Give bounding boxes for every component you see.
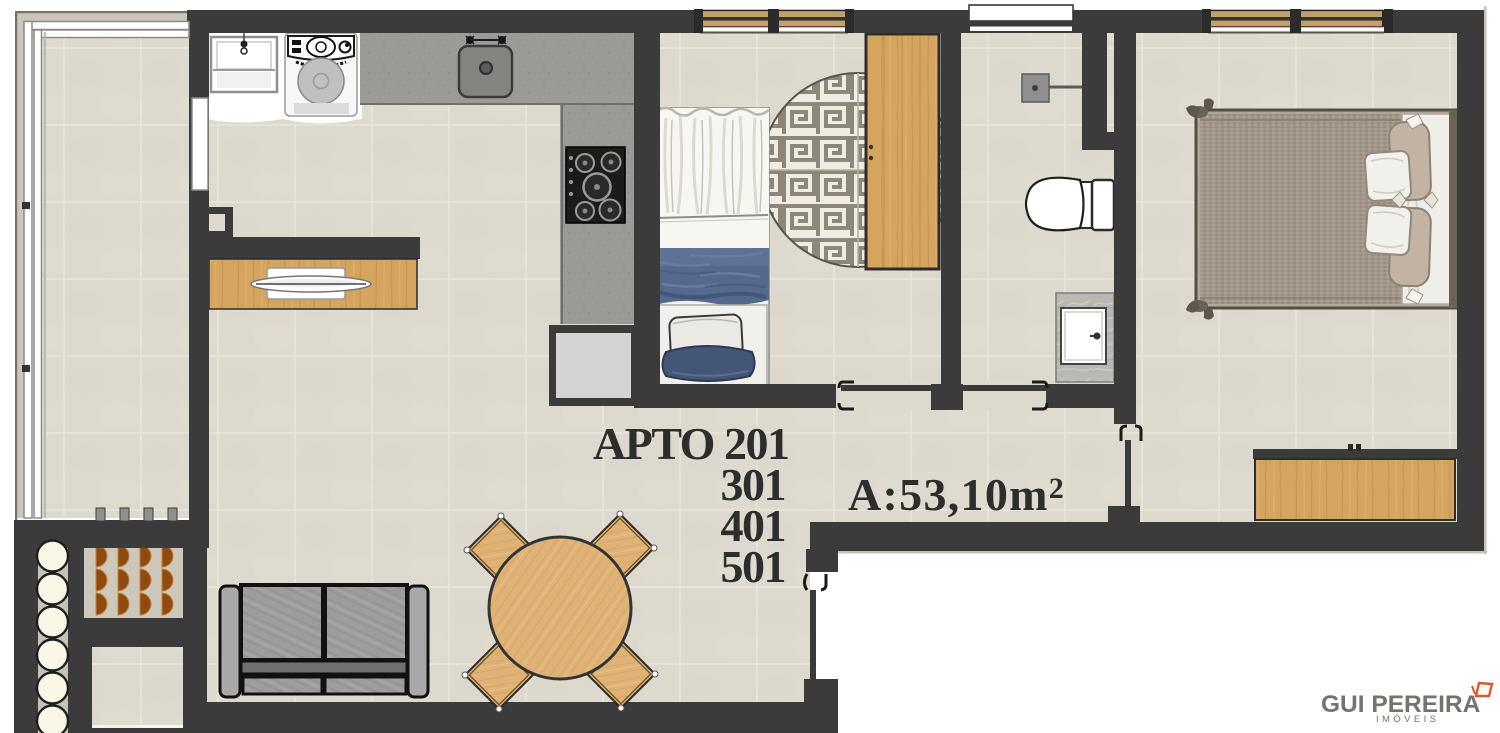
svg-text:501: 501 xyxy=(721,541,786,592)
svg-text:IMÓVEIS: IMÓVEIS xyxy=(1376,714,1439,725)
svg-text:A:53,10m2: A:53,10m2 xyxy=(848,469,1065,520)
